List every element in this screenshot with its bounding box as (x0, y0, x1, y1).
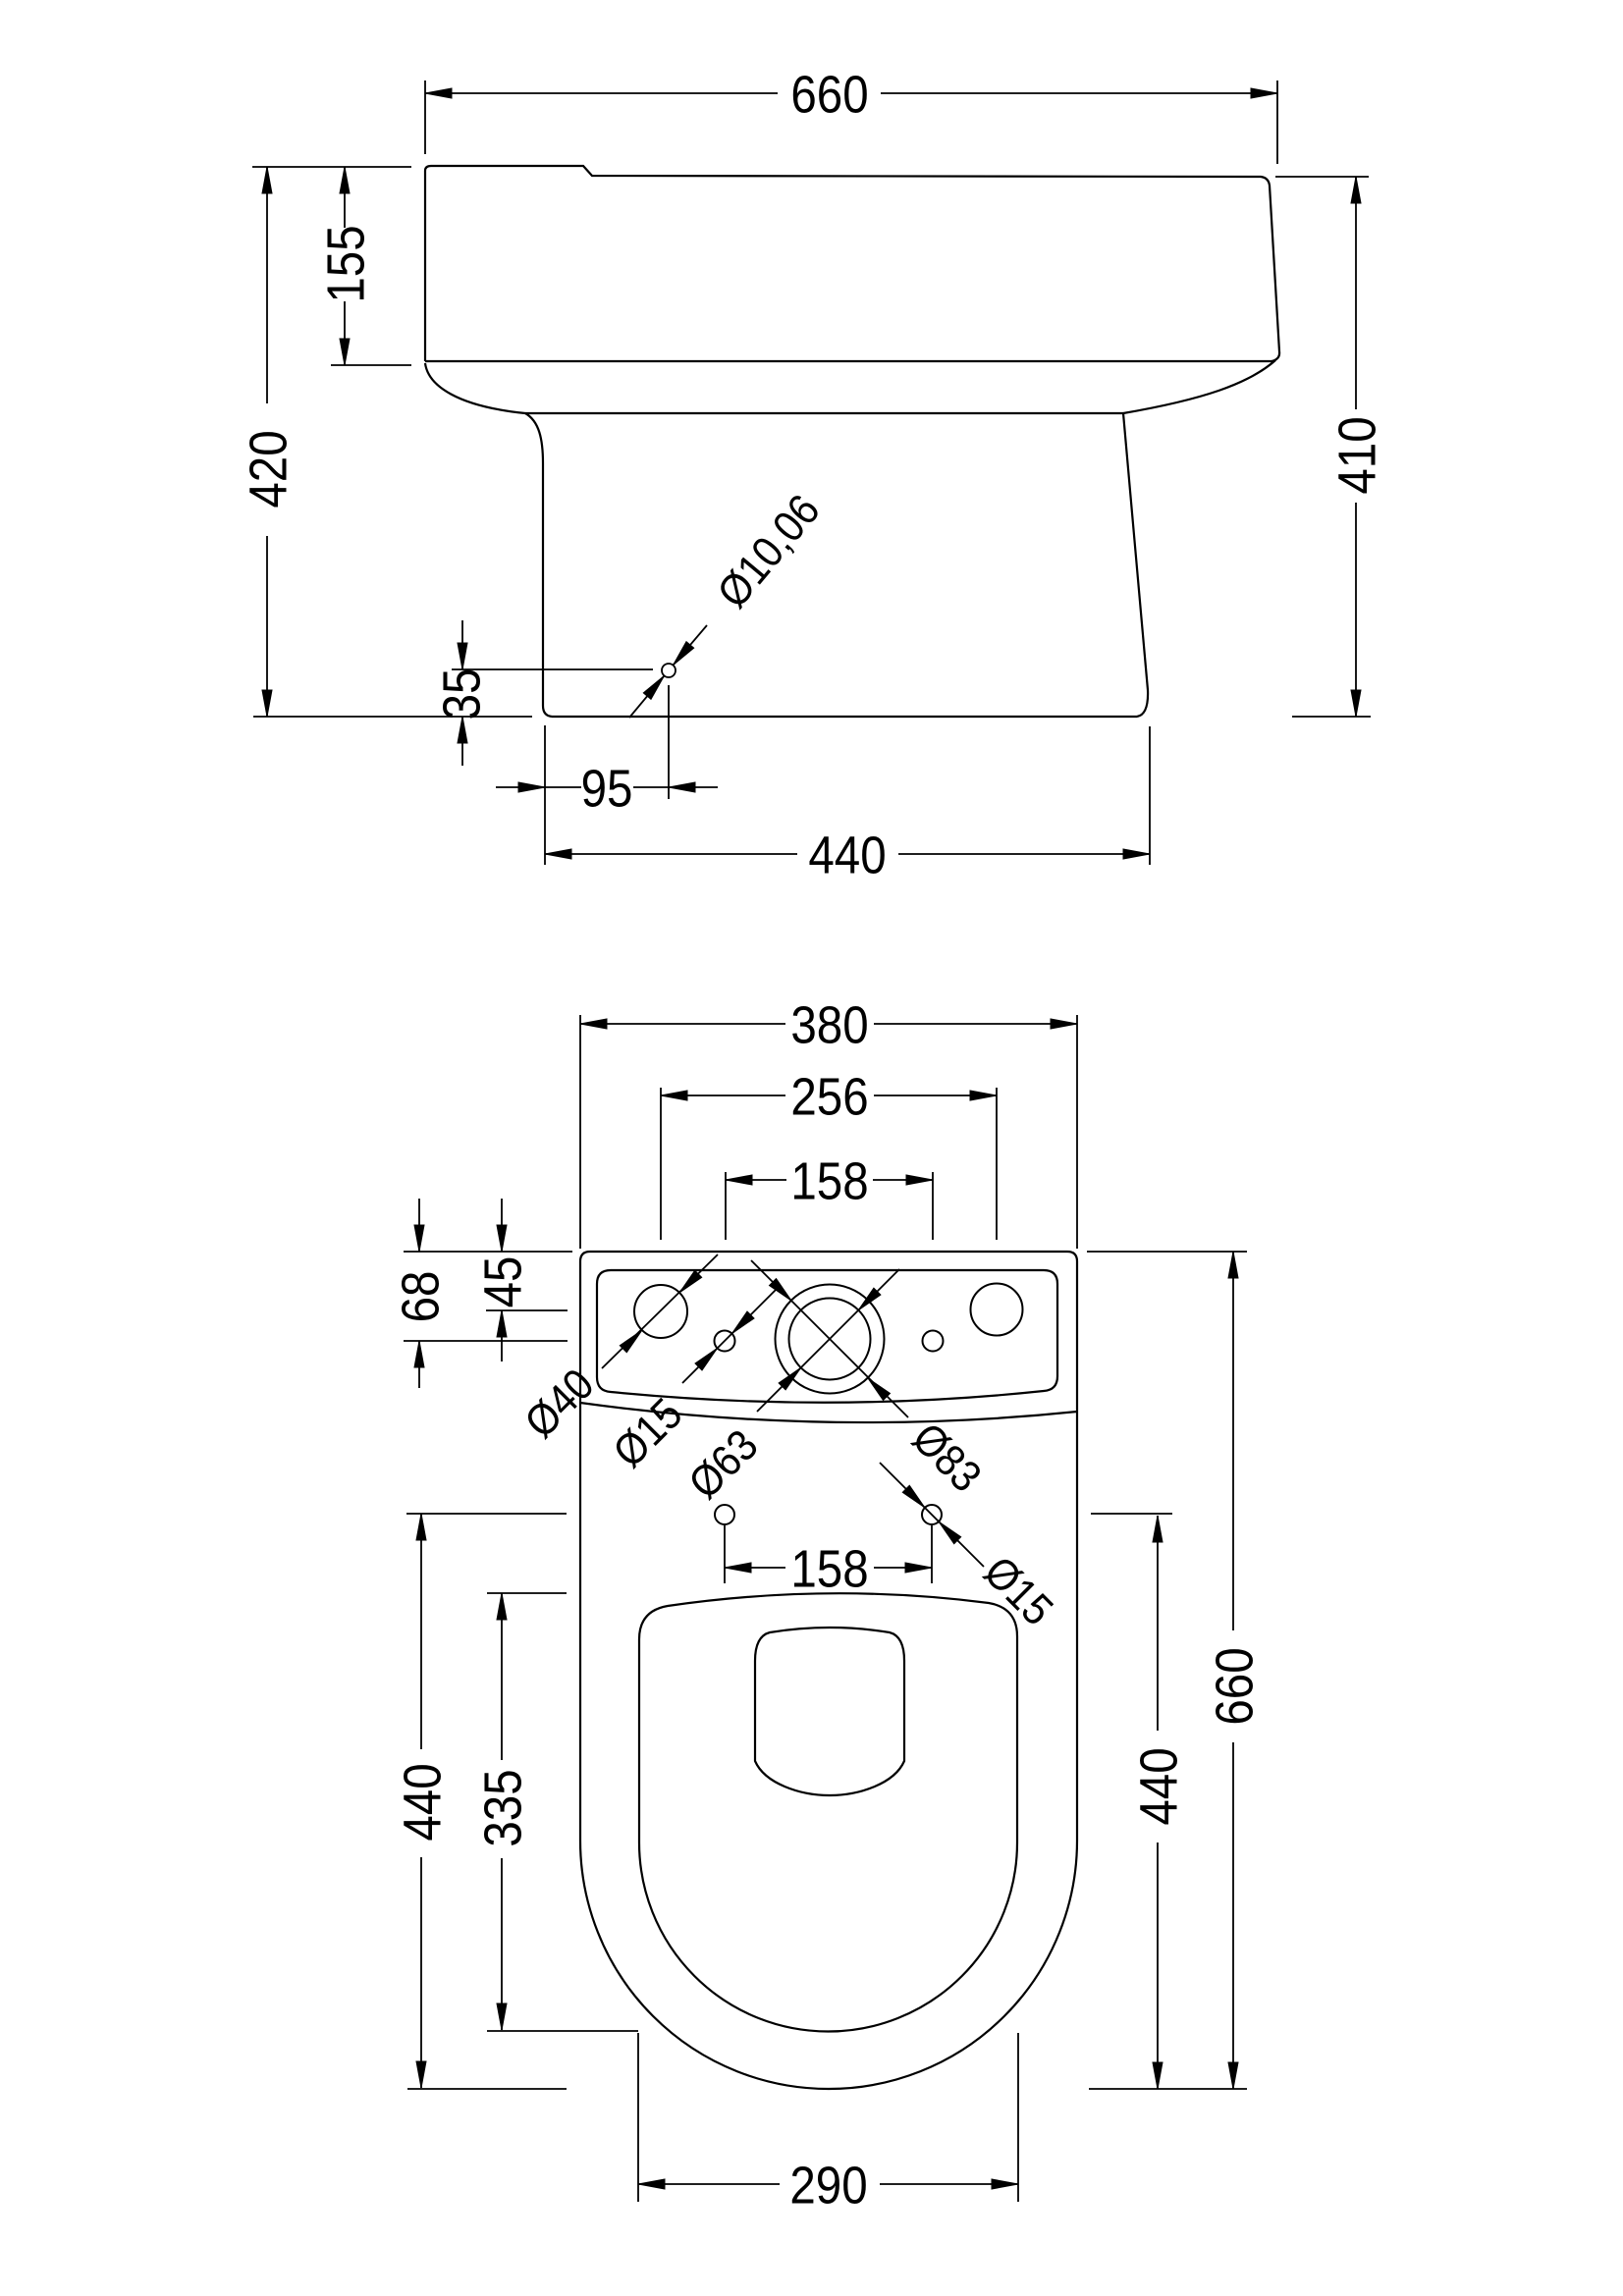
svg-text:158: 158 (790, 1539, 868, 1599)
svg-text:420: 420 (239, 430, 298, 507)
svg-text:35: 35 (432, 668, 492, 721)
svg-text:660: 660 (1205, 1647, 1265, 1725)
svg-text:440: 440 (1129, 1747, 1189, 1825)
svg-text:440: 440 (393, 1763, 453, 1841)
svg-text:158: 158 (790, 1151, 868, 1211)
svg-text:68: 68 (391, 1271, 451, 1323)
svg-text:440: 440 (808, 826, 886, 885)
svg-text:410: 410 (1327, 416, 1387, 494)
svg-text:256: 256 (790, 1067, 868, 1127)
svg-text:45: 45 (473, 1256, 533, 1308)
svg-text:660: 660 (790, 65, 868, 125)
svg-text:155: 155 (316, 225, 376, 302)
svg-text:95: 95 (581, 759, 633, 819)
svg-text:290: 290 (789, 2156, 867, 2216)
svg-text:380: 380 (790, 995, 868, 1055)
svg-text:335: 335 (473, 1769, 533, 1846)
